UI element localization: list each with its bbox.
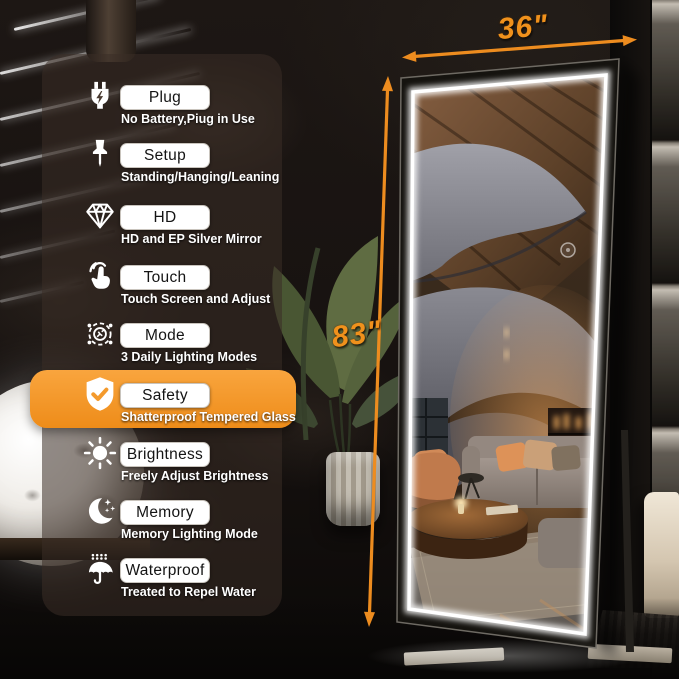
feature-touch: Touch Touch Screen and Adjust [42, 265, 282, 323]
plug-icon [81, 77, 119, 115]
umbrella-rain-icon [81, 550, 119, 588]
shield-check-icon [78, 372, 123, 417]
feature-label-pill: Waterproof [120, 558, 210, 583]
feature-label-pill: Memory [120, 500, 210, 525]
feature-panel: Plug No Battery,Piug in Use Setup Standi… [42, 54, 282, 616]
feature-label-pill: HD [120, 205, 210, 230]
feature-plug: Plug No Battery,Piug in Use [42, 85, 282, 143]
feature-subtitle: HD and EP Silver Mirror [121, 232, 311, 246]
feature-label-pill: Setup [120, 143, 210, 168]
feature-subtitle: Shatterproof Tempered Glass [121, 410, 311, 424]
feature-memory: Memory Memory Lighting Mode [42, 500, 282, 558]
feature-subtitle: Freely Adjust Brightness [121, 469, 311, 483]
feature-label: Brightness [127, 446, 203, 464]
feature-label-pill: Touch [120, 265, 210, 290]
fan-mode-icon [81, 315, 119, 353]
pushpin-icon [81, 135, 119, 173]
feature-waterproof: Waterproof Treated to Repel Water [42, 558, 282, 616]
feature-label: Memory [136, 504, 194, 522]
feature-label: Waterproof [125, 562, 204, 580]
mirror-stand-leg [621, 430, 634, 652]
feature-label-pill: Mode [120, 323, 210, 348]
feature-label: Touch [144, 269, 187, 287]
feature-subtitle: 3 Daily Lighting Modes [121, 350, 311, 364]
feature-hd: HD HD and EP Silver Mirror [42, 205, 282, 263]
feature-subtitle: Memory Lighting Mode [121, 527, 311, 541]
sun-icon [81, 434, 119, 472]
feature-subtitle: Touch Screen and Adjust [121, 292, 311, 306]
feature-setup: Setup Standing/Hanging/Leaning [42, 143, 282, 201]
feature-label: Plug [149, 89, 181, 107]
product-infographic: { "annotations": { "width_label": "36\""… [0, 0, 679, 679]
touch-icon [81, 257, 119, 295]
feature-label-pill: Safety [120, 383, 210, 408]
touch-sensor-ring [561, 243, 575, 257]
feature-label-pill: Plug [120, 85, 210, 110]
feature-subtitle: Standing/Hanging/Leaning [121, 170, 311, 184]
feature-safety: Safety Shatterproof Tempered Glass [42, 383, 282, 441]
height-dimension-arrow [364, 76, 393, 627]
feature-subtitle: Treated to Repel Water [121, 585, 311, 599]
moon-stars-icon [81, 492, 119, 530]
feature-label: Safety [142, 387, 188, 405]
feature-brightness: Brightness Freely Adjust Brightness [42, 442, 282, 500]
feature-subtitle: No Battery,Piug in Use [121, 112, 311, 126]
feature-label: Setup [144, 147, 186, 165]
feature-label: Mode [145, 327, 185, 345]
feature-label: HD [154, 209, 177, 227]
diamond-icon [81, 197, 119, 235]
feature-label-pill: Brightness [120, 442, 210, 467]
